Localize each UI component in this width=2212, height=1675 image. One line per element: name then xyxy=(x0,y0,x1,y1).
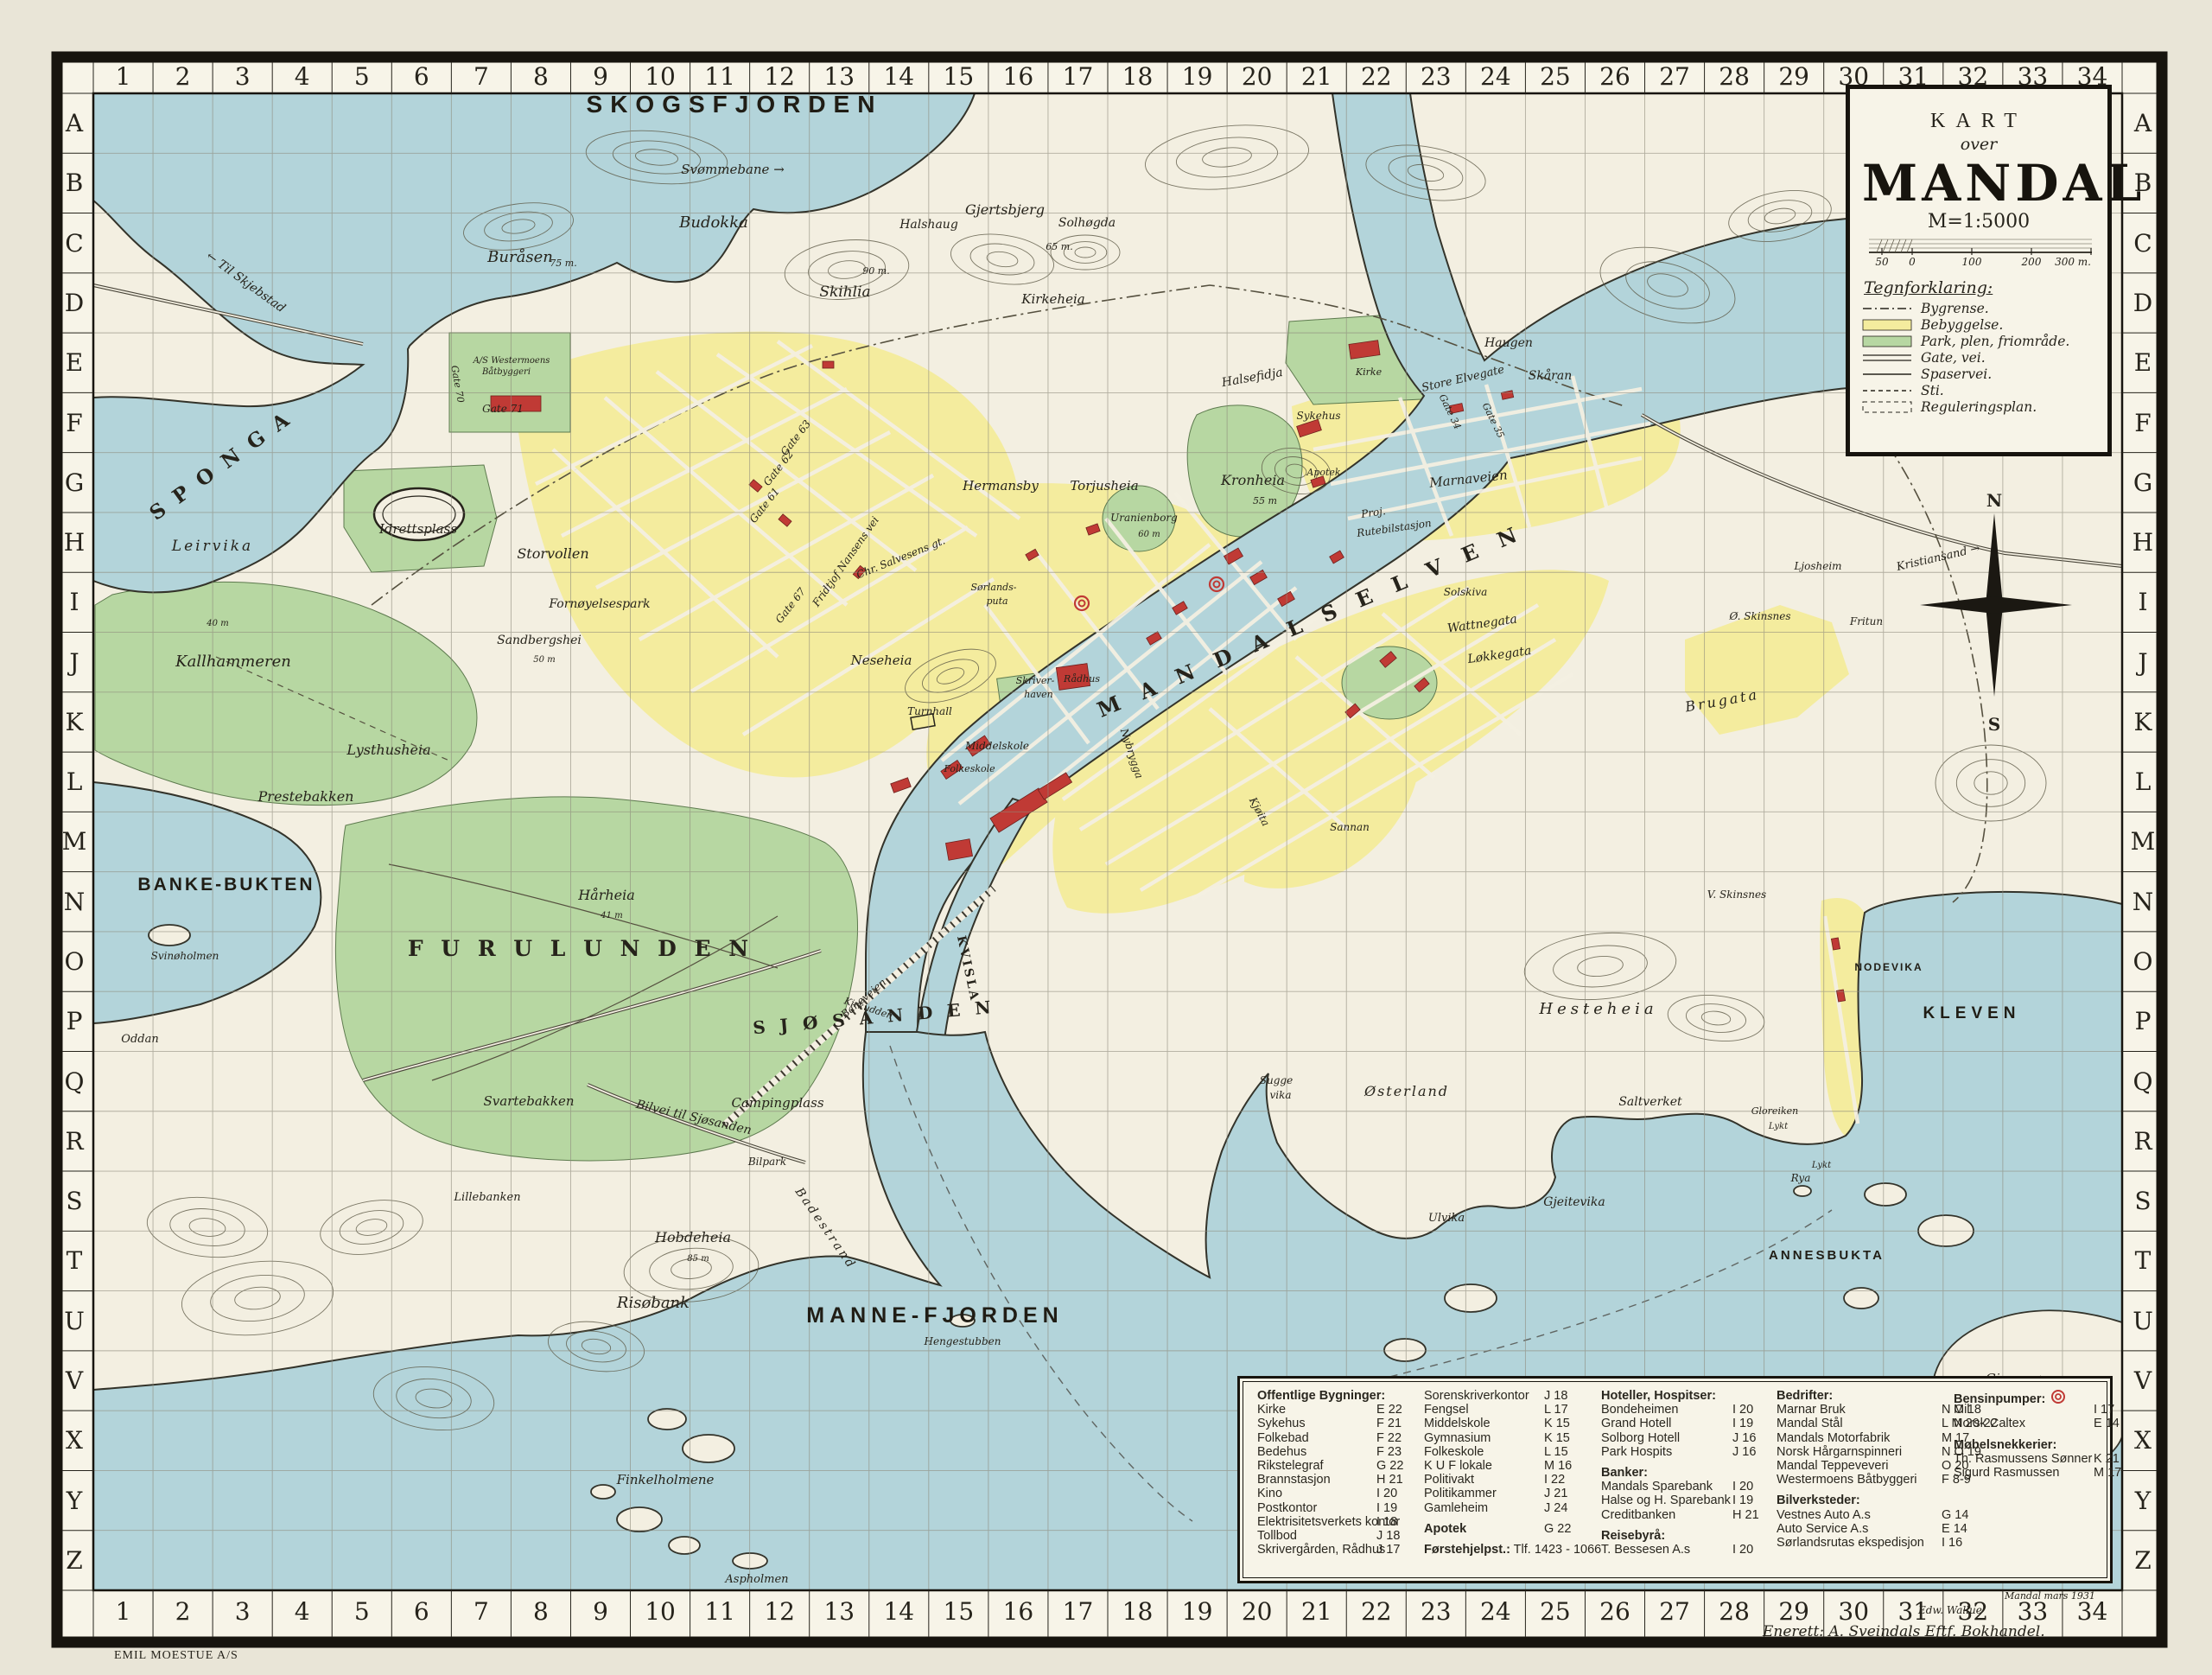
place-label: Lysthusheia xyxy=(346,742,430,758)
place-label: Fritun xyxy=(1849,615,1883,627)
legend-item: Bebyggelse. xyxy=(1862,317,2095,332)
index-entry: GymnasiumK 15 xyxy=(1424,1431,1601,1445)
place-label: Oddan xyxy=(121,1033,158,1046)
place-label: Svinøholmen xyxy=(151,950,219,962)
grid-row-label-right: N xyxy=(2124,872,2162,932)
grid-row-label-left: S xyxy=(55,1171,93,1231)
grid-row-label-left: B xyxy=(55,153,93,213)
place-label: 55 m xyxy=(1253,495,1277,506)
grid-row-label-left: K xyxy=(55,692,93,752)
grid-col-label-bottom: 25 xyxy=(1525,1592,1585,1630)
grid-col-label-bottom: 26 xyxy=(1585,1592,1644,1630)
grid-row-label-right: S xyxy=(2124,1171,2162,1231)
index-entry: Marnar BrukN O 18 xyxy=(1777,1403,1924,1417)
place-label: Ø. Skinsnes xyxy=(1729,610,1791,622)
index-entry: Mandal StålL M 20-22 xyxy=(1777,1417,1924,1430)
index-section-header: Offentlige Bygninger: xyxy=(1257,1389,1400,1403)
index-grid-ref: I 17 xyxy=(2094,1403,2114,1417)
grid-col-label-top: 1 xyxy=(93,57,153,95)
grid-row-label-right: Q xyxy=(2124,1051,2162,1111)
grid-col-label-top: 7 xyxy=(451,57,511,95)
grid-col-label-top: 20 xyxy=(1227,57,1287,95)
index-column: Bensinpumper:MilI 17Norsk CaltexE 14Møbe… xyxy=(1954,1389,2092,1480)
grid-col-label-top: 4 xyxy=(272,57,332,95)
legend-item: Sti. xyxy=(1862,383,2095,398)
place-label: Apotek xyxy=(1306,467,1341,478)
place-label: BANKE-BUKTEN xyxy=(137,875,315,895)
grid-row-label-right: I xyxy=(2124,572,2162,632)
grid-col-label-bottom: 3 xyxy=(213,1592,272,1630)
grid-row-label-right: L xyxy=(2124,752,2162,812)
place-label: Haugen xyxy=(1484,336,1533,350)
grid-row-label-right: Z xyxy=(2124,1531,2162,1590)
place-label: Budokka xyxy=(678,213,748,232)
index-entry: Norsk HårgarnspinneriN O 19 xyxy=(1777,1445,1924,1459)
grid-col-label-bottom: 16 xyxy=(988,1592,1048,1630)
place-label: MANNE-FJORDEN xyxy=(806,1303,1063,1328)
place-label: Sandbergshei xyxy=(497,634,582,647)
index-section-header: Reisebyrå: xyxy=(1601,1529,1731,1543)
index-section-header: Banker: xyxy=(1601,1466,1731,1480)
index-grid-ref: K 15 xyxy=(1544,1431,1570,1445)
index-grid-ref: J 16 xyxy=(1732,1431,1756,1445)
index-entry: SykehusF 21 xyxy=(1257,1417,1400,1430)
index-grid-ref: J 24 xyxy=(1544,1501,1567,1515)
index-entry: PolitikammerJ 21 xyxy=(1424,1487,1601,1500)
index-grid-ref: J 17 xyxy=(1376,1543,1400,1557)
grid-row-label-left: O xyxy=(55,932,93,991)
index-grid-ref: I 20 xyxy=(1732,1543,1753,1557)
grid-col-label-bottom: 18 xyxy=(1108,1592,1167,1630)
scalebar-label: 300 m. xyxy=(2055,256,2091,267)
map-sheet: SKOGSFJORDENSvømmebane →BudokkaBuråsen75… xyxy=(0,0,2212,1671)
index-entry: Solborg HotellJ 16 xyxy=(1601,1431,1731,1445)
grid-col-label-top: 13 xyxy=(810,57,869,95)
grid-col-label-bottom: 13 xyxy=(810,1592,869,1630)
grid-row-label-left: F xyxy=(55,392,93,452)
grid-row-label-right: T xyxy=(2124,1231,2162,1290)
index-grid-ref: F 23 xyxy=(1376,1445,1402,1459)
index-grid-ref: E 14 xyxy=(2094,1417,2120,1430)
index-grid-ref: E 22 xyxy=(1376,1403,1402,1417)
place-label: Gate 71 xyxy=(482,403,524,415)
scalebar-label: 50 xyxy=(1875,256,1889,267)
index-entry: Skrivergården, RådhusJ 17 xyxy=(1257,1543,1400,1557)
grid-row-label-right: K xyxy=(2124,692,2162,752)
grid-col-label-top: 5 xyxy=(332,57,391,95)
grid-row-label-right: R xyxy=(2124,1111,2162,1171)
index-entry: Sigurd RasmussenM 17 xyxy=(1954,1466,2092,1480)
grid-row-label-left: L xyxy=(55,752,93,812)
grid-col-label-top: 17 xyxy=(1048,57,1108,95)
grid-row-label-left: H xyxy=(55,513,93,572)
place-label: Lillebanken xyxy=(453,1191,520,1204)
place-label: Hobdeheia xyxy=(654,1229,731,1245)
grid-row-label-right: C xyxy=(2124,213,2162,273)
grid-row-label-right: G xyxy=(2124,453,2162,513)
place-label: KLEVEN xyxy=(1923,1004,2020,1022)
place-label: Neseheia xyxy=(850,653,912,668)
place-label: Ljosheim xyxy=(1793,560,1841,572)
place-label: Sannan xyxy=(1330,821,1370,833)
index-section-header: Førstehjelpst.: Tlf. 1423 - 1066 xyxy=(1424,1543,1601,1557)
grid-row-label-left: T xyxy=(55,1231,93,1290)
index-grid-ref: J 16 xyxy=(1732,1445,1756,1459)
scalebar-label: 100 xyxy=(1962,256,1982,267)
place-label: ANNESBUKTA xyxy=(1769,1248,1885,1263)
place-label: F U R U L U N D E N xyxy=(408,936,753,961)
building-symbol xyxy=(823,361,834,368)
place-label: S xyxy=(1988,714,2000,735)
grid-col-label-bottom: 1 xyxy=(93,1592,153,1630)
index-column: Hoteller, Hospitser:BondeheimenI 20Grand… xyxy=(1601,1389,1731,1557)
place-label: NODEVIKA xyxy=(1854,961,1923,973)
place-label: Lykt xyxy=(1768,1122,1789,1131)
index-grid-ref: J 18 xyxy=(1544,1389,1567,1403)
grid-col-label-top: 3 xyxy=(213,57,272,95)
index-section-header: Bilverksteder: xyxy=(1777,1493,1924,1507)
grid-row-label-left: C xyxy=(55,213,93,273)
place-label: Solhøgda xyxy=(1058,216,1116,230)
title-cartouche: KART over MANDAL M=1:5000 500100200300 m… xyxy=(1846,85,2112,456)
index-entry: Westermoens BåtbyggeriF 8-9 xyxy=(1777,1473,1924,1487)
grid-row-label-right: O xyxy=(2124,932,2162,991)
grid-col-label-top: 2 xyxy=(153,57,213,95)
grid-col-label-bottom: 4 xyxy=(272,1592,332,1630)
legend-item-label: Bygrense. xyxy=(1921,301,1989,316)
grid-col-label-top: 11 xyxy=(690,57,750,95)
index-entry: KinoI 20 xyxy=(1257,1487,1400,1500)
index-entry: MiddelskoleK 15 xyxy=(1424,1417,1601,1430)
grid-col-label-bottom: 19 xyxy=(1167,1592,1227,1630)
grid-row-label-left: P xyxy=(55,991,93,1051)
grid-col-label-bottom: 9 xyxy=(570,1592,630,1630)
index-entry: Halse og H. SparebankI 19 xyxy=(1601,1493,1731,1507)
place-label: Kirke xyxy=(1355,366,1382,378)
scalebar-label: 0 xyxy=(1909,256,1916,267)
place-label: Middelskole xyxy=(964,740,1029,752)
spaservei-icon xyxy=(1862,368,1912,380)
grid-col-label-bottom: 24 xyxy=(1465,1592,1525,1630)
legend-item: Spaservei. xyxy=(1862,366,2095,381)
index-grid-ref: F 22 xyxy=(1376,1431,1402,1445)
index-column: Offentlige Bygninger:KirkeE 22SykehusF 2… xyxy=(1257,1389,1400,1557)
index-grid-ref: G 22 xyxy=(1544,1522,1571,1536)
grid-row-label-left: M xyxy=(55,812,93,871)
index-entry: TollbodJ 18 xyxy=(1257,1529,1400,1543)
printer-credit: EMIL MOESTUE A/S xyxy=(114,1649,238,1663)
map-date: Mandal mars 1931 xyxy=(2005,1590,2095,1602)
index-grid-ref: M 17 xyxy=(2094,1466,2121,1480)
index-grid-ref: G 22 xyxy=(1376,1459,1403,1473)
index-section-header: Bedrifter: xyxy=(1777,1389,1924,1403)
grid-row-label-left: A xyxy=(55,93,93,153)
place-label: Idrettsplass xyxy=(378,521,457,537)
grid-col-label-top: 10 xyxy=(631,57,690,95)
grid-row-label-right: X xyxy=(2124,1411,2162,1470)
legend-item-label: Bebyggelse. xyxy=(1921,317,2003,333)
place-label: Gjeitevika xyxy=(1543,1195,1605,1209)
title-over: over xyxy=(1862,135,2095,154)
place-label: Kronheia xyxy=(1220,472,1285,488)
index-entry: FolkebadF 22 xyxy=(1257,1431,1400,1445)
grid-row-label-left: J xyxy=(55,633,93,692)
grid-row-label-left: Z xyxy=(55,1531,93,1590)
place-label: Finkelholmene xyxy=(616,1472,715,1487)
index-grid-ref: K 21 xyxy=(2094,1452,2120,1466)
place-label: Sørlands- xyxy=(971,582,1017,593)
grid-row-label-left: I xyxy=(55,572,93,632)
index-entry: MilI 17 xyxy=(1954,1403,2092,1417)
index-inline-value: Tlf. 1423 - 1066 xyxy=(1510,1543,1601,1557)
index-entry: Mandals SparebankI 20 xyxy=(1601,1480,1731,1493)
grid-row-label-right: J xyxy=(2124,633,2162,692)
grid-col-label-bottom: 15 xyxy=(929,1592,988,1630)
index-entry: Vestnes Auto A.sG 14 xyxy=(1777,1508,1924,1522)
grid-col-label-bottom: 14 xyxy=(869,1592,929,1630)
index-entry: Auto Service A.sE 14 xyxy=(1777,1522,1924,1536)
place-label: Buråsen xyxy=(486,247,553,266)
index-entry: FengselL 17 xyxy=(1424,1403,1601,1417)
grid-row-label-left: E xyxy=(55,333,93,392)
index-entry: BrannstasjonH 21 xyxy=(1257,1473,1400,1487)
grid-col-label-bottom: 8 xyxy=(511,1592,570,1630)
place-label: Risøbank xyxy=(616,1294,690,1312)
index-grid-ref: G 14 xyxy=(1942,1508,1968,1522)
place-label: 50 m xyxy=(533,655,555,665)
place-label: Prestebakken xyxy=(257,788,354,805)
place-label: Storvollen xyxy=(517,545,588,562)
place-label: Skriver- xyxy=(1016,675,1055,686)
bebyggelse-icon xyxy=(1862,319,1912,331)
reguleringsplan-icon xyxy=(1862,401,1912,413)
grid-col-label-bottom: 12 xyxy=(750,1592,810,1630)
index-grid-ref: I 20 xyxy=(1376,1487,1397,1500)
grid-col-label-top: 22 xyxy=(1346,57,1406,95)
rights-credit: Enerett: A. Sveindals Eftf. Bokhandel. xyxy=(1763,1623,2045,1640)
index-grid-ref: K 15 xyxy=(1544,1417,1570,1430)
index-grid-ref: I 20 xyxy=(1732,1480,1753,1493)
index-entry: CreditbankenH 21 xyxy=(1601,1508,1731,1522)
legend-item-label: Reguleringsplan. xyxy=(1921,399,2037,415)
grid-row-label-right: F xyxy=(2124,392,2162,452)
grid-row-label-left: Y xyxy=(55,1470,93,1530)
grid-col-label-top: 9 xyxy=(570,57,630,95)
place-label: haven xyxy=(1024,689,1052,700)
grid-row-label-left: N xyxy=(55,872,93,932)
place-label: Sugge xyxy=(1260,1074,1293,1086)
place-label: Båtbyggeri xyxy=(481,366,531,377)
legend-item: Bygrense. xyxy=(1862,301,2095,315)
index-entry: Mandal TeppeveveriO 20 xyxy=(1777,1459,1924,1473)
grid-col-label-top: 26 xyxy=(1585,57,1644,95)
grid-col-label-top: 18 xyxy=(1108,57,1167,95)
grid-col-label-bottom: 21 xyxy=(1287,1592,1346,1630)
title-kart: KART xyxy=(1862,110,2095,133)
place-label: Lykt xyxy=(1811,1161,1832,1170)
grid-col-label-top: 29 xyxy=(1764,57,1824,95)
title-scale: M=1:5000 xyxy=(1862,211,2095,232)
grid-row-label-right: M xyxy=(2124,812,2162,871)
index-entry: BondeheimenI 20 xyxy=(1601,1403,1731,1417)
index-grid-ref: I 20 xyxy=(1732,1403,1753,1417)
grid-row-label-right: E xyxy=(2124,333,2162,392)
place-label: Saltverket xyxy=(1618,1095,1682,1109)
place-label: 90 m. xyxy=(862,265,889,277)
index-grid-ref: I 18 xyxy=(1376,1515,1397,1529)
place-label: N xyxy=(1986,490,2002,511)
index-section-header: Bensinpumper: xyxy=(1954,1389,2092,1403)
index-table: Offentlige Bygninger:KirkeE 22SykehusF 2… xyxy=(1237,1376,2113,1583)
grid-row-label-left: U xyxy=(55,1291,93,1351)
place-label: 75 m. xyxy=(550,258,576,269)
place-label: Rya xyxy=(1790,1172,1811,1184)
index-entry: Park HospitsJ 16 xyxy=(1601,1445,1731,1459)
place-label: A/S Westermoens xyxy=(473,356,550,366)
grid-col-label-top: 14 xyxy=(869,57,929,95)
grid-col-label-top: 8 xyxy=(511,57,570,95)
place-label: Aspholmen xyxy=(724,1573,788,1586)
grid-col-label-top: 16 xyxy=(988,57,1048,95)
grid-col-label-bottom: 20 xyxy=(1227,1592,1287,1630)
grid-row-label-left: R xyxy=(55,1111,93,1171)
index-grid-ref: I 19 xyxy=(1376,1501,1397,1515)
place-label: Uranienborg xyxy=(1110,512,1178,524)
place-label: Folkeskole xyxy=(943,763,995,774)
place-label: Bilpark xyxy=(747,1156,786,1168)
index-column: Bedrifter:Marnar BrukN O 18Mandal StålL … xyxy=(1777,1389,1924,1550)
index-section-header: Hoteller, Hospitser: xyxy=(1601,1389,1731,1403)
grid-col-label-bottom: 27 xyxy=(1645,1592,1705,1630)
scale-bar: 500100200300 m. xyxy=(1862,232,2102,267)
grid-row-label-right: P xyxy=(2124,991,2162,1051)
index-grid-ref: I 22 xyxy=(1544,1473,1565,1487)
sti-icon xyxy=(1862,385,1912,397)
index-entry: Norsk CaltexE 14 xyxy=(1954,1417,2092,1430)
place-label: Hesteheia xyxy=(1538,1000,1657,1018)
index-entry: Elektrisitetsverkets kontorI 18 xyxy=(1257,1515,1400,1529)
grid-col-label-top: 24 xyxy=(1465,57,1525,95)
scalebar-label: 200 xyxy=(2021,256,2042,267)
index-grid-ref: I 19 xyxy=(1732,1493,1753,1507)
index-grid-ref: I 19 xyxy=(1732,1417,1753,1430)
index-grid-ref: H 21 xyxy=(1376,1473,1403,1487)
grid-row-label-left: G xyxy=(55,453,93,513)
place-label: Kirkeheia xyxy=(1020,291,1084,307)
place-label: 40 m xyxy=(206,619,228,628)
place-label: Ulvika xyxy=(1428,1212,1465,1225)
index-entry: T. Bessesen A.sI 20 xyxy=(1601,1543,1731,1557)
place-label: Hengestubben xyxy=(924,1335,1001,1347)
index-grid-ref: F 21 xyxy=(1376,1417,1402,1430)
place-label: Kallhammeren xyxy=(175,653,291,671)
grid-row-label-right: U xyxy=(2124,1291,2162,1351)
place-label: Svømmebane → xyxy=(681,162,785,177)
grid-row-label-right: Y xyxy=(2124,1470,2162,1530)
place-label: Fornøyelsespark xyxy=(548,597,650,611)
grid-row-label-left: V xyxy=(55,1351,93,1411)
grid-col-label-bottom: 28 xyxy=(1705,1592,1764,1630)
building-symbol xyxy=(1831,938,1840,950)
grid-col-label-bottom: 2 xyxy=(153,1592,213,1630)
grid-row-label-right: D xyxy=(2124,273,2162,333)
index-entry: K U F lokaleM 16 xyxy=(1424,1459,1601,1473)
place-label: puta xyxy=(986,595,1007,607)
legend-item-label: Sti. xyxy=(1921,383,1944,398)
place-label: 60 m xyxy=(1138,530,1160,539)
index-entry: Mandals MotorfabrikM 17 xyxy=(1777,1431,1924,1445)
place-label: 85 m xyxy=(687,1254,709,1264)
index-entry: GamleheimJ 24 xyxy=(1424,1501,1601,1515)
place-label: Torjusheia xyxy=(1070,478,1138,494)
index-grid-ref: J 18 xyxy=(1376,1529,1400,1543)
index-grid-ref: I 16 xyxy=(1942,1536,1962,1550)
title-name: MANDAL xyxy=(1862,154,2095,213)
place-label: 41 m xyxy=(600,911,622,920)
grid-row-label-left: Q xyxy=(55,1051,93,1111)
grid-col-label-bottom: 6 xyxy=(391,1592,451,1630)
index-grid-ref: L 15 xyxy=(1544,1445,1568,1459)
grid-col-label-top: 23 xyxy=(1406,57,1465,95)
legend-item: Gate, vei. xyxy=(1862,350,2095,365)
index-grid-ref: H 21 xyxy=(1732,1508,1759,1522)
bygrense-icon xyxy=(1862,303,1912,315)
grid-col-label-bottom: 11 xyxy=(690,1592,750,1630)
legend-item-label: Park, plen, friområde. xyxy=(1921,334,2069,349)
index-column: SorenskriverkontorJ 18FengselL 17Middels… xyxy=(1424,1389,1601,1557)
grid-col-label-bottom: 23 xyxy=(1406,1592,1465,1630)
place-label: Gloreiken xyxy=(1751,1105,1798,1117)
index-entry: Grand HotellI 19 xyxy=(1601,1417,1731,1430)
grid-col-label-top: 27 xyxy=(1645,57,1705,95)
legend: Bygrense.Bebyggelse.Park, plen, friområd… xyxy=(1862,301,2095,414)
index-entry: PolitivaktI 22 xyxy=(1424,1473,1601,1487)
place-label: Hårheia xyxy=(577,887,635,903)
index-entry: BedehusF 23 xyxy=(1257,1445,1400,1459)
index-entry: SorenskriverkontorJ 18 xyxy=(1424,1389,1601,1403)
place-label: Campingplass xyxy=(731,1095,823,1111)
grid-col-label-bottom: 5 xyxy=(332,1592,391,1630)
grid-col-label-top: 19 xyxy=(1167,57,1227,95)
gate-icon xyxy=(1862,352,1912,364)
index-entry: Th. Rasmussens SønnerK 21 xyxy=(1954,1452,2092,1466)
place-label: Solskiva xyxy=(1444,586,1487,598)
place-label: V. Skinsnes xyxy=(1707,888,1766,901)
grid-row-label-left: X xyxy=(55,1411,93,1470)
legend-item: Reguleringsplan. xyxy=(1862,399,2095,414)
park-icon xyxy=(1862,335,1912,347)
grid-col-label-top: 6 xyxy=(391,57,451,95)
place-label: Turnhall xyxy=(907,705,952,717)
grid-row-label-right: A xyxy=(2124,93,2162,153)
grid-col-label-top: 15 xyxy=(929,57,988,95)
place-label: Halshaug xyxy=(899,218,958,232)
place-label: 65 m. xyxy=(1046,241,1072,252)
cartographer-signature: Edw. Wallue xyxy=(1918,1604,1982,1616)
index-entry: FolkeskoleL 15 xyxy=(1424,1445,1601,1459)
place-label: vika xyxy=(1269,1089,1291,1101)
index-grid-ref: M 16 xyxy=(1544,1459,1572,1473)
place-label: Leirvika xyxy=(171,538,253,555)
grid-row-label-right: V xyxy=(2124,1351,2162,1411)
grid-row-label-left: D xyxy=(55,273,93,333)
index-entry: RikstelegrafG 22 xyxy=(1257,1459,1400,1473)
index-section-header: ApotekG 22 xyxy=(1424,1522,1601,1536)
place-label: Østerland xyxy=(1363,1083,1449,1099)
legend-item-label: Spaservei. xyxy=(1921,366,1992,382)
index-entry: PostkontorI 19 xyxy=(1257,1501,1400,1515)
grid-col-label-top: 28 xyxy=(1705,57,1764,95)
